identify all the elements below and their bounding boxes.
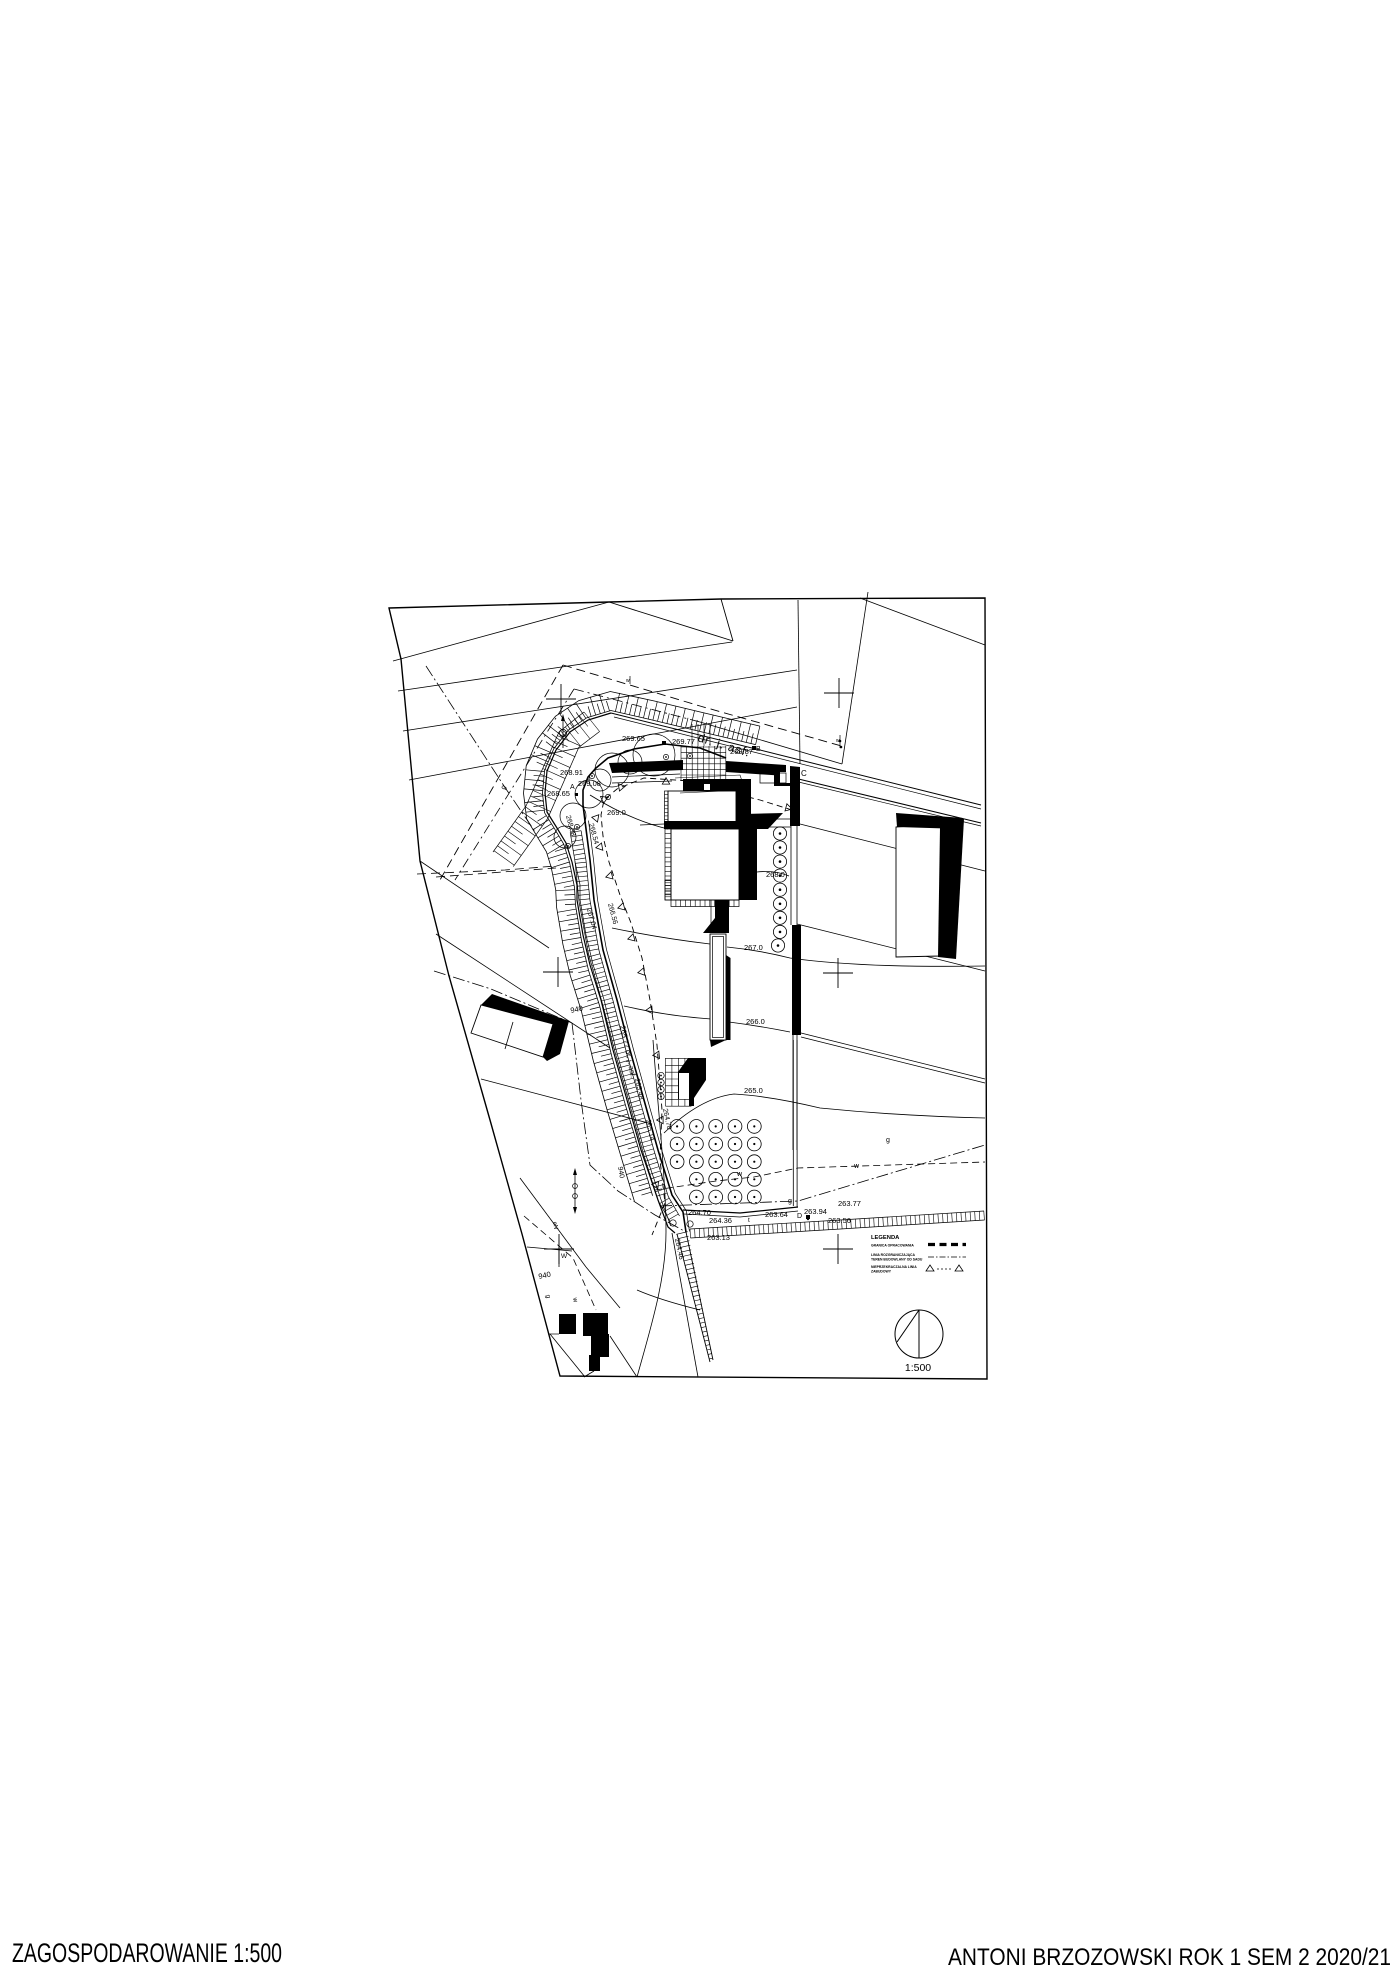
svg-text:263.77: 263.77 bbox=[838, 1199, 861, 1208]
svg-text:g: g bbox=[886, 1137, 890, 1144]
svg-text:268.65: 268.65 bbox=[547, 789, 570, 798]
svg-text:ANTONI BRZOZOWSKI ROK 1 SEM 2: ANTONI BRZOZOWSKI ROK 1 SEM 2 2020/21 bbox=[948, 1944, 1391, 1971]
svg-text:A: A bbox=[570, 784, 575, 791]
svg-text:NIEPRZEKRACZALNA LINIA: NIEPRZEKRACZALNA LINIA bbox=[871, 1265, 917, 1269]
svg-text:GRANICA OPRACOWANIA: GRANICA OPRACOWANIA bbox=[871, 1244, 914, 1248]
svg-text:263.94: 263.94 bbox=[804, 1207, 827, 1216]
svg-text:268.91: 268.91 bbox=[560, 768, 583, 777]
svg-text:w: w bbox=[736, 1171, 743, 1178]
svg-text:263.56: 263.56 bbox=[828, 1216, 851, 1225]
svg-text:1:500: 1:500 bbox=[905, 1362, 931, 1374]
svg-text:269.77: 269.77 bbox=[672, 737, 695, 746]
svg-text:269.08: 269.08 bbox=[578, 779, 601, 788]
svg-text:ZABUDOWY: ZABUDOWY bbox=[871, 1270, 892, 1274]
svg-text:w: w bbox=[853, 1163, 860, 1170]
svg-text:263.13: 263.13 bbox=[707, 1233, 730, 1242]
svg-text:C: C bbox=[801, 769, 807, 778]
svg-text:267.0: 267.0 bbox=[744, 943, 763, 952]
svg-text:D: D bbox=[797, 1213, 802, 1220]
svg-text:265.0: 265.0 bbox=[744, 1086, 763, 1095]
svg-text:g: g bbox=[788, 1198, 792, 1205]
svg-text:LEGENDA: LEGENDA bbox=[871, 1235, 900, 1241]
svg-text:264.36: 264.36 bbox=[709, 1216, 732, 1225]
svg-text:W: W bbox=[561, 1253, 568, 1260]
svg-text:263.64: 263.64 bbox=[765, 1210, 788, 1219]
svg-text:LINIA ROZGRANICZAJĄCA: LINIA ROZGRANICZAJĄCA bbox=[871, 1253, 916, 1257]
svg-text:w: w bbox=[836, 738, 840, 744]
svg-text:t: t bbox=[748, 1217, 750, 1224]
svg-text:TEREN BUDOWLANY OD SADU: TEREN BUDOWLANY OD SADU bbox=[871, 1258, 923, 1262]
svg-text:269.0: 269.0 bbox=[607, 808, 626, 817]
svg-text:B: B bbox=[756, 746, 761, 753]
svg-text:w: w bbox=[626, 678, 630, 684]
svg-text:264.70: 264.70 bbox=[688, 1208, 711, 1217]
svg-text:ZAGOSPODAROWANIE 1:500: ZAGOSPODAROWANIE 1:500 bbox=[12, 1938, 282, 1968]
svg-text:266.0: 266.0 bbox=[746, 1017, 765, 1026]
svg-text:269.65: 269.65 bbox=[622, 734, 645, 743]
svg-text:268.0: 268.0 bbox=[766, 870, 785, 879]
